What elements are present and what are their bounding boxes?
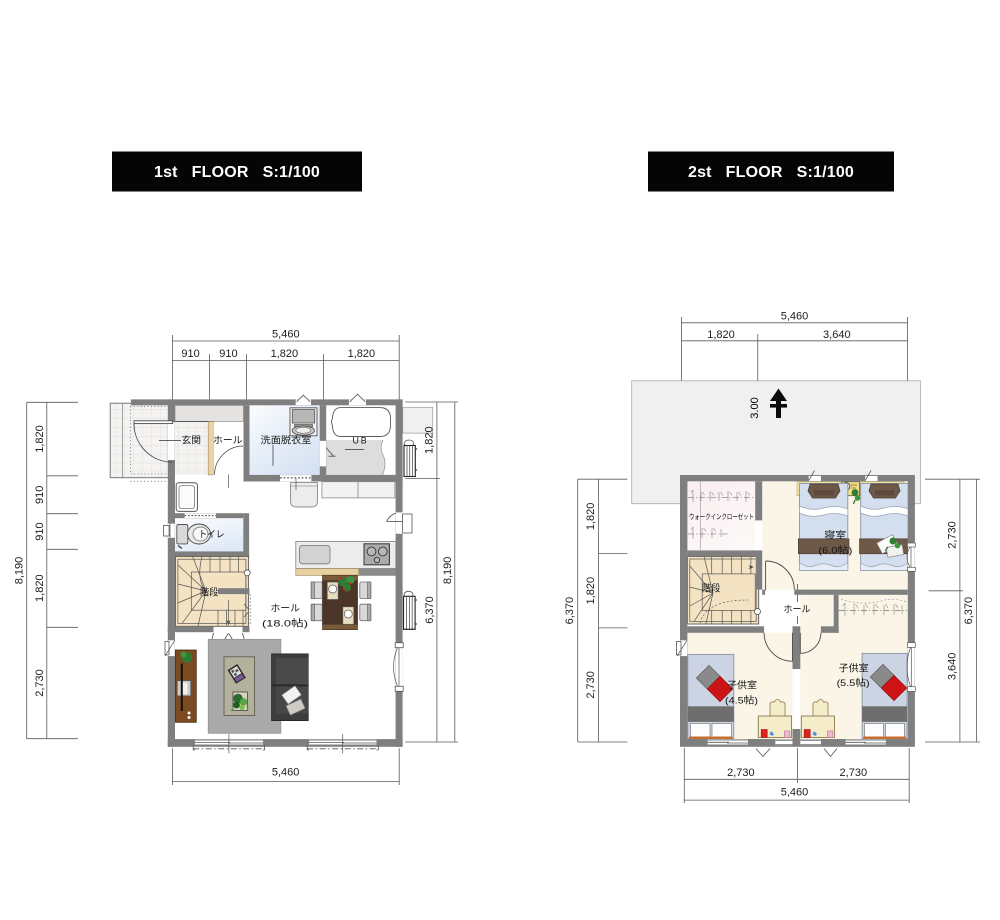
svg-text:(6.0帖): (6.0帖) (818, 545, 852, 557)
svg-text:階段: 階段 (702, 582, 721, 594)
svg-text:2,730: 2,730 (840, 767, 868, 779)
svg-text:2,730: 2,730 (34, 669, 46, 697)
svg-text:3,640: 3,640 (947, 653, 959, 681)
svg-text:2,730: 2,730 (947, 521, 959, 549)
svg-text:1,820: 1,820 (585, 577, 597, 605)
svg-text:1,820: 1,820 (424, 426, 436, 454)
svg-text:6,370: 6,370 (963, 597, 975, 625)
svg-text:6,370: 6,370 (564, 597, 576, 625)
svg-text:1,820: 1,820 (34, 425, 46, 453)
svg-text:3,640: 3,640 (823, 329, 851, 341)
svg-text:(5.5帖): (5.5帖) (837, 677, 870, 689)
svg-text:(18.0帖): (18.0帖) (262, 618, 308, 630)
svg-text:8,190: 8,190 (14, 557, 26, 585)
svg-text:トイレ: トイレ (199, 530, 225, 541)
svg-text:UB: UB (353, 435, 369, 446)
svg-text:3.00: 3.00 (749, 397, 761, 418)
svg-text:2,730: 2,730 (585, 671, 597, 699)
svg-text:910: 910 (34, 522, 46, 540)
svg-text:5,460: 5,460 (272, 329, 300, 341)
svg-text:1,820: 1,820 (707, 329, 735, 341)
svg-text:1,820: 1,820 (585, 503, 597, 531)
svg-text:5,460: 5,460 (272, 767, 300, 779)
svg-text:玄関: 玄関 (182, 435, 202, 447)
svg-text:ホール: ホール (784, 604, 811, 615)
svg-text:1,820: 1,820 (34, 574, 46, 602)
svg-text:階段: 階段 (200, 586, 219, 598)
svg-text:ウォークインクローゼット: ウォークインクローゼット (689, 512, 754, 521)
svg-text:8,190: 8,190 (442, 557, 454, 585)
svg-text:910: 910 (34, 486, 46, 504)
svg-text:洗面脱衣室: 洗面脱衣室 (261, 435, 312, 447)
svg-text:ホール: ホール (271, 604, 301, 615)
svg-text:(4.5帖): (4.5帖) (725, 694, 758, 706)
svg-text:5,460: 5,460 (781, 787, 809, 799)
svg-text:2st FLOOR S:1/100: 2st FLOOR S:1/100 (688, 164, 854, 181)
svg-text:910: 910 (181, 348, 199, 360)
svg-text:910: 910 (219, 348, 237, 360)
svg-text:1,820: 1,820 (348, 348, 376, 360)
svg-text:寝室: 寝室 (824, 529, 846, 541)
svg-text:5,460: 5,460 (781, 310, 809, 322)
svg-text:子供室: 子供室 (839, 662, 869, 674)
svg-text:2,730: 2,730 (727, 767, 755, 779)
svg-text:子供室: 子供室 (727, 679, 757, 691)
svg-text:1st FLOOR S:1/100: 1st FLOOR S:1/100 (154, 164, 320, 181)
svg-text:6,370: 6,370 (424, 596, 436, 624)
svg-text:1,820: 1,820 (271, 348, 299, 360)
svg-text:ホール: ホール (213, 436, 243, 447)
